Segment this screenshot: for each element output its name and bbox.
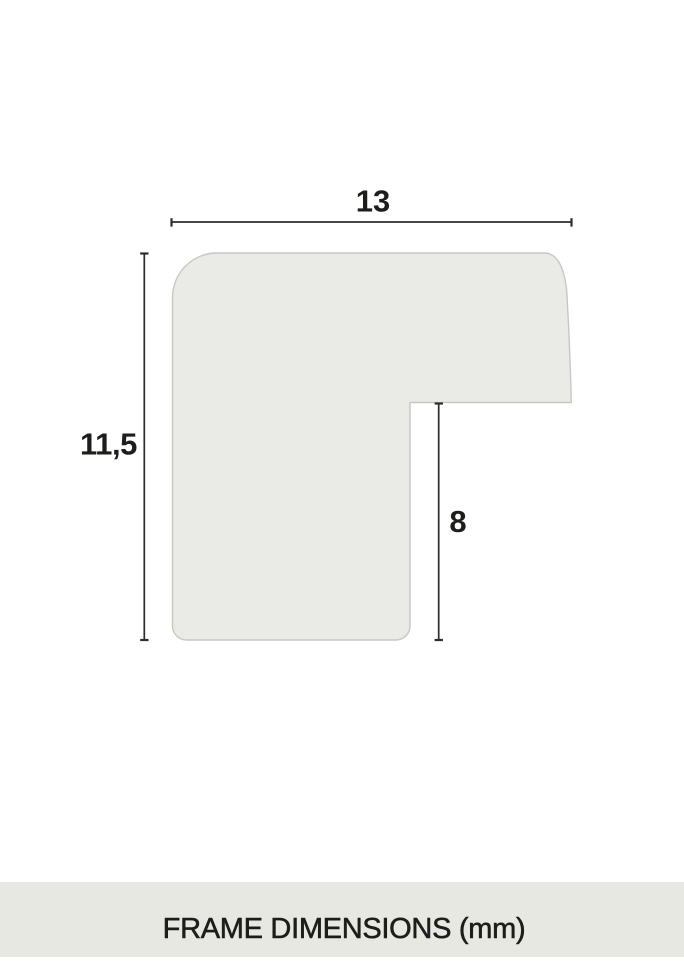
svg-text:11,5: 11,5 <box>80 427 137 462</box>
svg-text:13: 13 <box>356 184 390 219</box>
svg-text:8: 8 <box>449 504 466 539</box>
